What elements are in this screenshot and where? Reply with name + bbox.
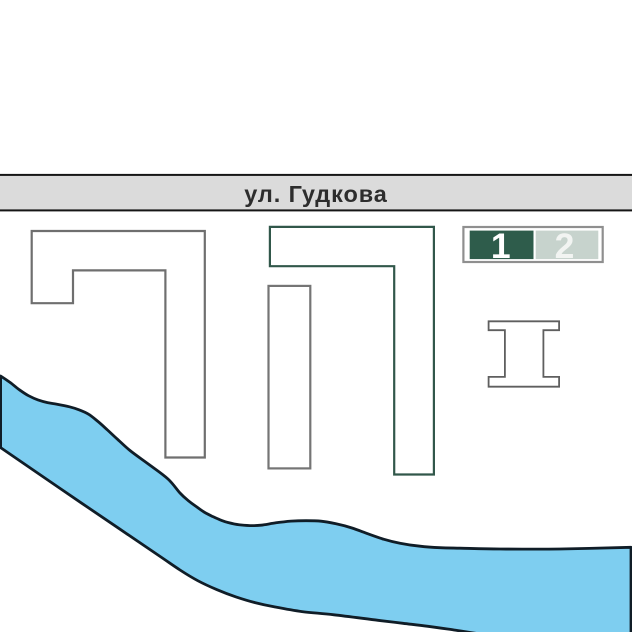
svg-text:ул. Гудкова: ул. Гудкова — [244, 181, 388, 207]
svg-text:1: 1 — [491, 226, 511, 266]
svg-text:2: 2 — [555, 226, 575, 266]
